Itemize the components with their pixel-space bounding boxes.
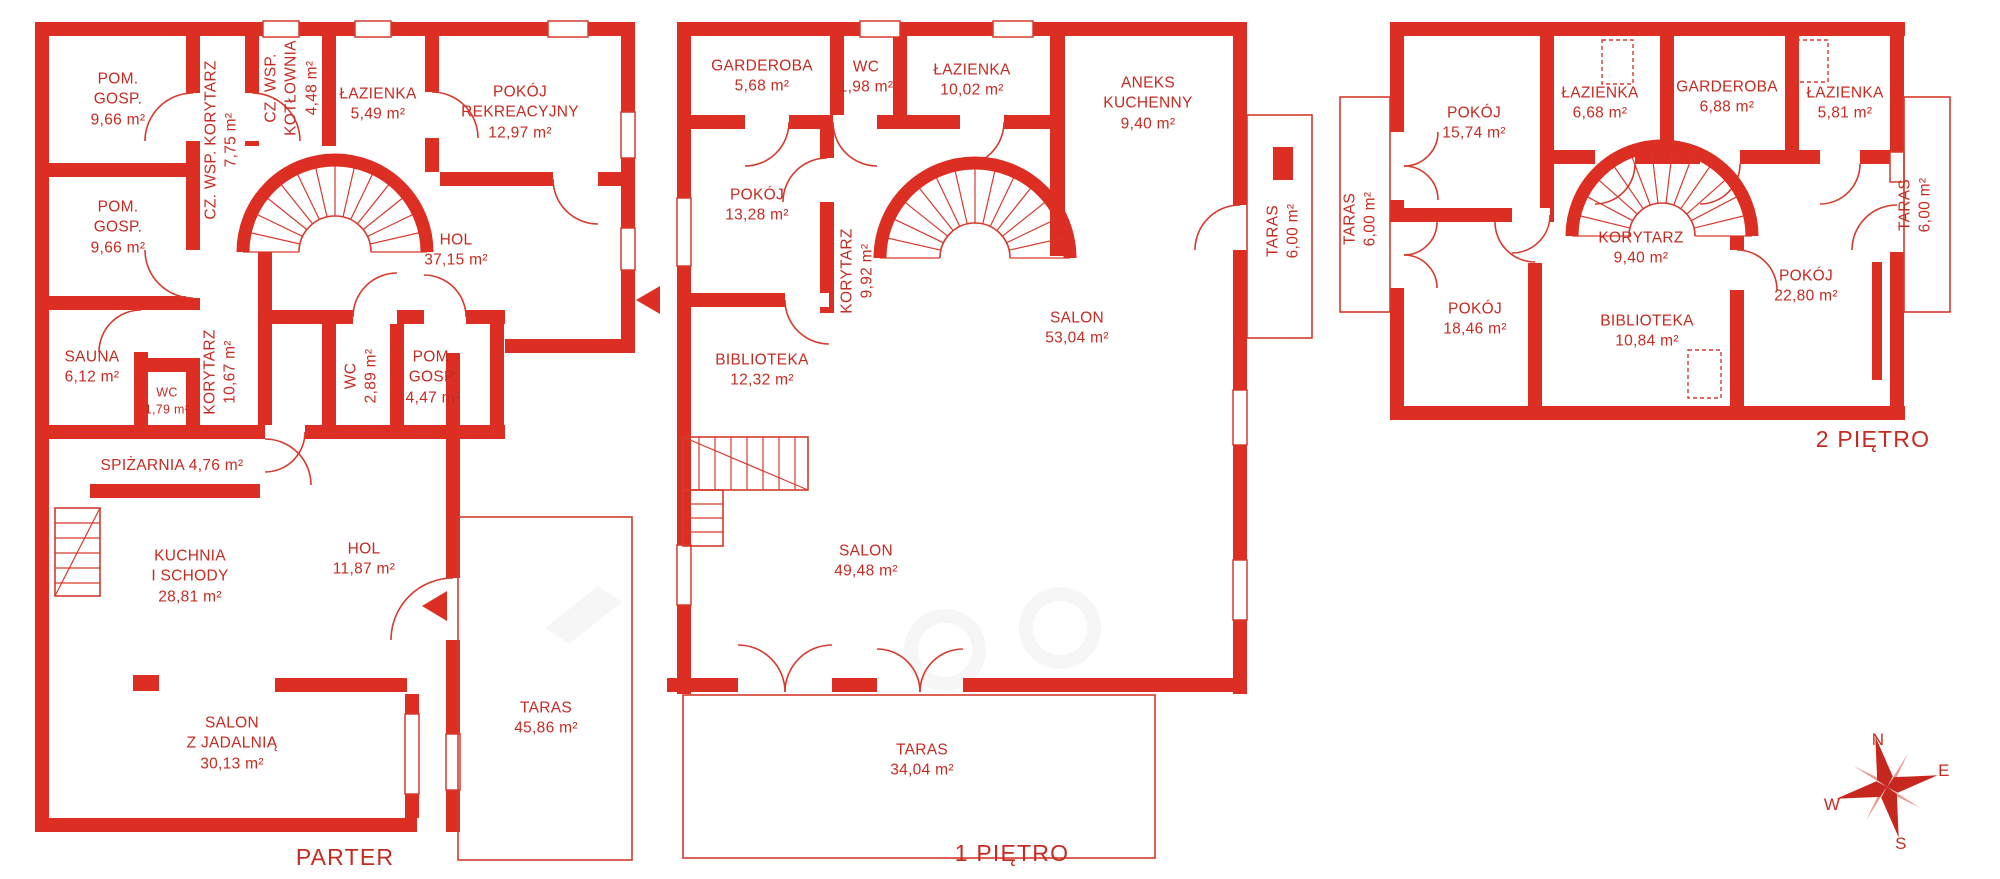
taras-outline-south [683,695,1155,858]
entrance-arrow-hol [422,591,447,621]
watermark [545,586,1094,684]
compass-rose [1825,725,1950,850]
floor-plan-parter [35,21,660,860]
floorplan-page: POM. GOSP. 9,66 m²CZ. WSP. KORYTARZ 7,75… [0,0,2000,879]
l-stairs-pietro-1 [683,437,808,546]
taras-outline-west [1340,97,1390,312]
taras-outline-east2 [1904,97,1950,312]
spiral-stairs [243,146,1752,258]
taras-outline-parter [458,517,632,860]
entrance-arrow-east [636,286,660,314]
straight-stairs-parter [55,508,100,596]
floor-plan-pietro-1 [667,21,1312,858]
floorplan-canvas [0,0,2000,879]
